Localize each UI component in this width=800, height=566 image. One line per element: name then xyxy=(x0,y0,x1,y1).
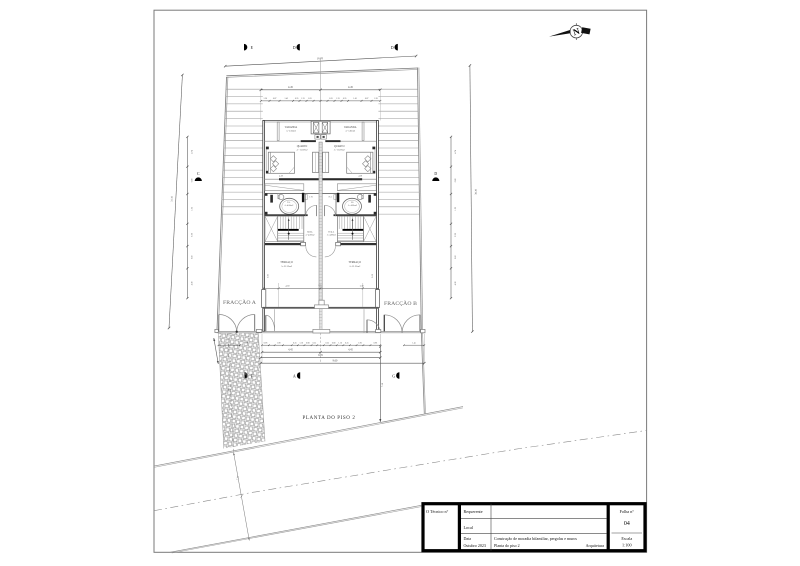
svg-text:A=4.00m2: A=4.00m2 xyxy=(284,204,293,207)
svg-text:1.43: 1.43 xyxy=(285,98,289,100)
svg-text:0.35: 0.35 xyxy=(313,343,317,345)
svg-text:4.28: 4.28 xyxy=(279,175,283,177)
svg-text:4.45: 4.45 xyxy=(348,86,353,89)
svg-text:1.96: 1.96 xyxy=(245,343,249,345)
svg-text:4.45: 4.45 xyxy=(288,349,293,352)
svg-text:0.87: 0.87 xyxy=(365,98,369,100)
svg-text:A=21.32m2: A=21.32m2 xyxy=(349,265,361,268)
svg-text:1.70: 1.70 xyxy=(309,197,313,199)
svg-text:A=21.32m2: A=21.32m2 xyxy=(281,265,293,268)
svg-text:Escala: Escala xyxy=(621,536,632,541)
svg-text:HALL: HALL xyxy=(328,231,334,234)
svg-text:0.25: 0.25 xyxy=(318,285,321,287)
svg-text:QUARTO: QUARTO xyxy=(297,145,308,148)
svg-text:TERRAÇO: TERRAÇO xyxy=(280,261,293,264)
svg-text:Requerente: Requerente xyxy=(464,509,483,514)
svg-text:FRACÇÃO B: FRACÇÃO B xyxy=(384,299,417,307)
svg-text:0.96: 0.96 xyxy=(264,343,268,345)
svg-text:0.35: 0.35 xyxy=(325,343,329,345)
svg-text:A: A xyxy=(293,374,296,378)
svg-text:G: G xyxy=(392,374,395,378)
svg-text:0.35: 0.35 xyxy=(329,98,333,100)
svg-text:0.35: 0.35 xyxy=(295,98,299,100)
svg-text:VARANDA: VARANDA xyxy=(285,126,298,129)
svg-text:I.S.: I.S. xyxy=(287,202,290,204)
svg-text:HALL: HALL xyxy=(307,231,313,234)
svg-text:A=11.07m2: A=11.07m2 xyxy=(334,148,346,151)
svg-text:1.35: 1.35 xyxy=(336,98,340,100)
svg-text:Folha n°: Folha n° xyxy=(620,509,635,514)
svg-text:A=11.07m2: A=11.07m2 xyxy=(297,148,309,151)
svg-text:0.87: 0.87 xyxy=(273,98,277,100)
svg-text:1.43: 1.43 xyxy=(353,98,357,100)
svg-text:30.20: 30.20 xyxy=(475,188,478,195)
svg-text:1.70: 1.70 xyxy=(328,197,332,199)
svg-text:31.35: 31.35 xyxy=(170,195,173,202)
svg-text:VARANDA: VARANDA xyxy=(344,126,357,129)
svg-text:9.05: 9.05 xyxy=(318,354,323,357)
svg-text:1.90: 1.90 xyxy=(277,343,281,345)
svg-text:Arquitetura: Arquitetura xyxy=(586,543,605,548)
svg-text:16.05: 16.05 xyxy=(317,57,324,60)
svg-text:A=5.05m2: A=5.05m2 xyxy=(286,129,297,132)
svg-text:PLANTA DO PISO 2: PLANTA DO PISO 2 xyxy=(303,416,356,421)
svg-text:0.80: 0.80 xyxy=(332,343,336,345)
svg-text:1:100: 1:100 xyxy=(622,543,632,548)
svg-text:1.10: 1.10 xyxy=(338,343,342,345)
svg-text:Local: Local xyxy=(464,525,474,530)
svg-text:04: 04 xyxy=(624,520,630,527)
svg-text:0.80: 0.80 xyxy=(306,343,310,345)
svg-text:0.96: 0.96 xyxy=(374,343,378,345)
svg-text:D: D xyxy=(434,172,437,176)
svg-text:1.28: 1.28 xyxy=(374,98,378,100)
svg-text:A=4.09m2: A=4.09m2 xyxy=(305,233,314,236)
svg-text:D: D xyxy=(293,46,296,50)
svg-text:0.35: 0.35 xyxy=(345,343,349,345)
svg-text:1.35: 1.35 xyxy=(301,98,305,100)
svg-text:Outubro 2023: Outubro 2023 xyxy=(464,543,486,548)
svg-text:Planta do piso 2: Planta do piso 2 xyxy=(494,543,520,548)
svg-text:I.S.: I.S. xyxy=(351,202,354,204)
svg-text:O Técnico n°: O Técnico n° xyxy=(426,509,449,514)
svg-text:FRACÇÃO A: FRACÇÃO A xyxy=(223,298,257,306)
svg-text:0.35: 0.35 xyxy=(343,98,347,100)
svg-text:1.90: 1.90 xyxy=(358,343,362,345)
svg-text:4.45: 4.45 xyxy=(348,349,353,352)
svg-text:4.28: 4.28 xyxy=(358,175,362,177)
svg-text:0.35: 0.35 xyxy=(308,98,312,100)
svg-text:A=4.09m2: A=4.09m2 xyxy=(327,233,336,236)
svg-text:C: C xyxy=(197,172,200,176)
svg-text:A=5.05m2: A=5.05m2 xyxy=(345,129,356,132)
svg-text:A=4.00m2: A=4.00m2 xyxy=(348,204,357,207)
svg-text:1.30: 1.30 xyxy=(263,98,267,100)
svg-text:D: D xyxy=(391,46,394,50)
svg-text:Data: Data xyxy=(464,536,472,541)
svg-text:0.35: 0.35 xyxy=(293,343,297,345)
svg-text:TERRAÇO: TERRAÇO xyxy=(348,261,361,264)
svg-text:4.45: 4.45 xyxy=(288,86,293,89)
svg-text:9.60: 9.60 xyxy=(333,360,338,363)
svg-text:1.10: 1.10 xyxy=(299,343,303,345)
svg-text:1.45: 1.45 xyxy=(412,343,416,345)
svg-text:QUARTO: QUARTO xyxy=(334,145,345,148)
